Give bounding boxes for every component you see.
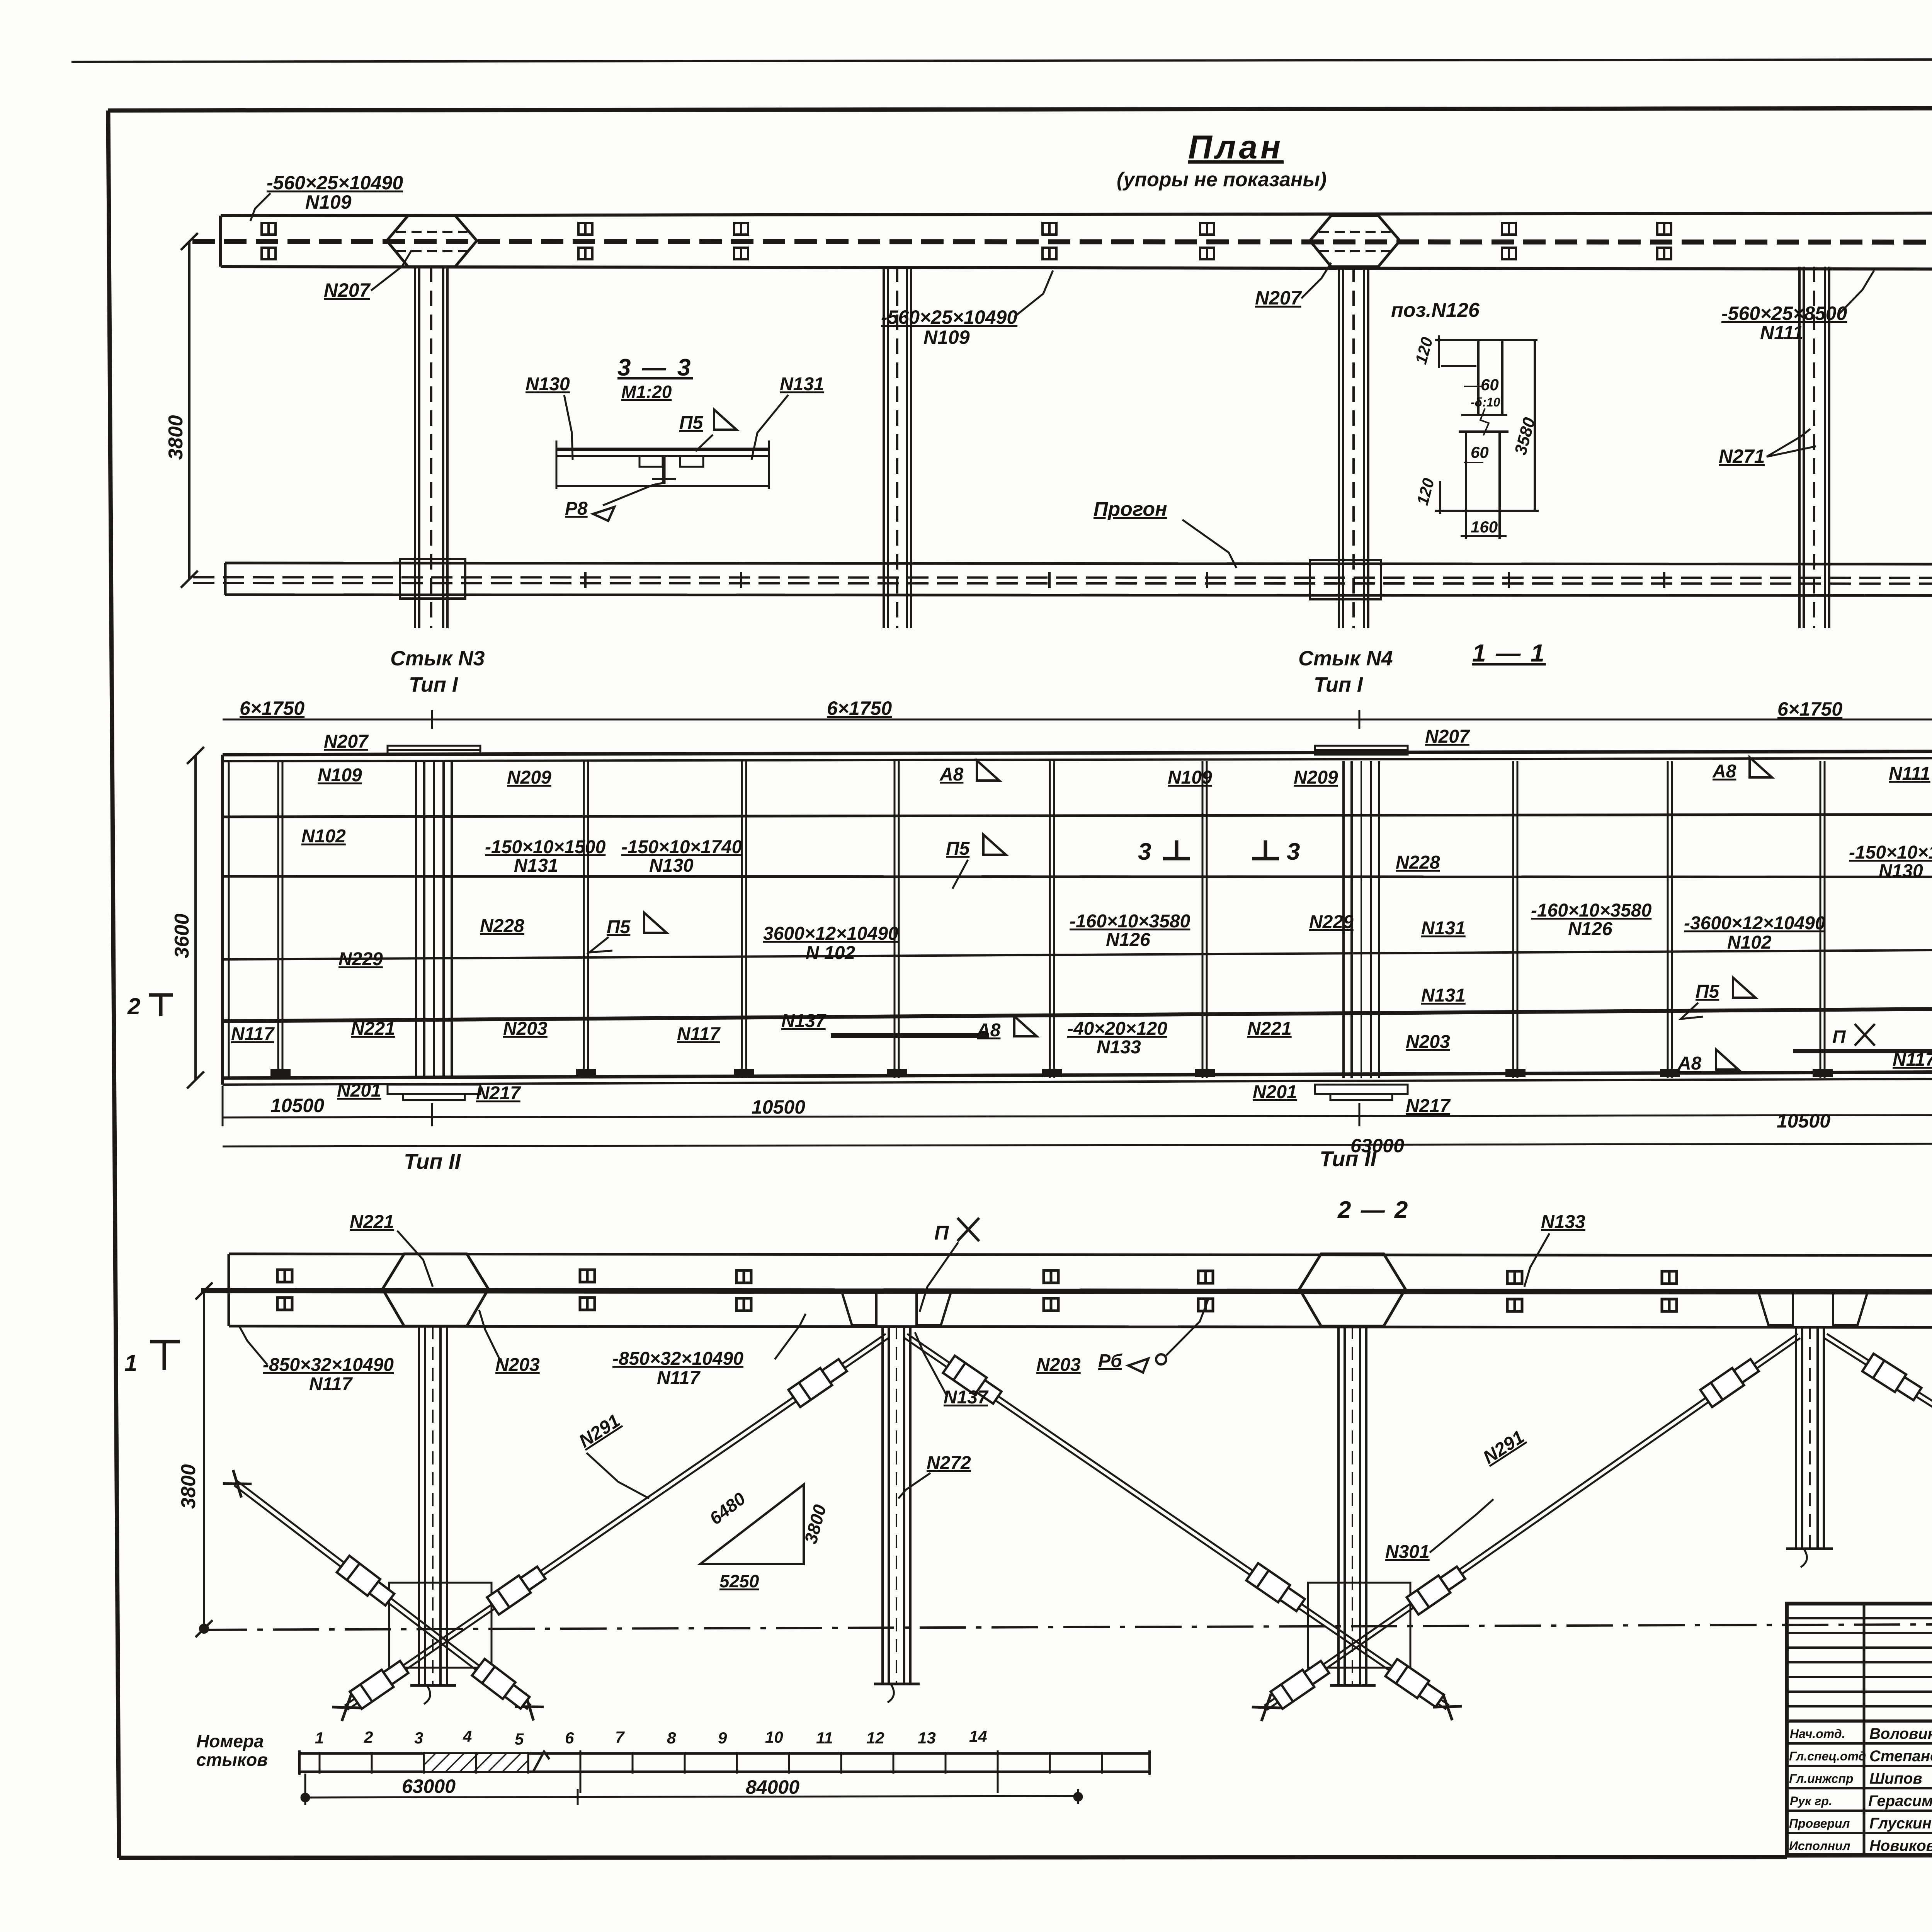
svg-text:N102: N102 bbox=[1727, 932, 1772, 953]
svg-text:N 102: N 102 bbox=[806, 943, 855, 963]
svg-text:Степанов: Степанов bbox=[1869, 1748, 1932, 1765]
svg-text:3: 3 bbox=[1138, 838, 1151, 865]
svg-text:N109: N109 bbox=[1168, 767, 1212, 788]
svg-text:А8: А8 bbox=[1712, 761, 1736, 782]
svg-text:N133: N133 bbox=[1097, 1037, 1141, 1058]
svg-text:6×1750: 6×1750 bbox=[240, 697, 304, 719]
svg-text:6×1750: 6×1750 bbox=[827, 697, 892, 719]
svg-text:Исполнил: Исполнил bbox=[1789, 1839, 1850, 1853]
svg-text:N207: N207 bbox=[1255, 287, 1302, 309]
svg-text:Номера: Номера bbox=[196, 1731, 264, 1751]
svg-text:9: 9 bbox=[718, 1729, 727, 1747]
svg-text:10500: 10500 bbox=[1777, 1110, 1830, 1132]
svg-text:N130: N130 bbox=[1879, 861, 1923, 881]
svg-text:N228: N228 bbox=[480, 916, 524, 936]
svg-text:N130: N130 bbox=[649, 855, 694, 876]
svg-text:Тип I: Тип I bbox=[409, 673, 458, 696]
svg-text:N301: N301 bbox=[1385, 1542, 1430, 1562]
svg-text:N137: N137 bbox=[781, 1011, 827, 1031]
svg-text:N207: N207 bbox=[1425, 726, 1470, 747]
svg-text:10500: 10500 bbox=[270, 1095, 324, 1116]
svg-text:Нач.отд.: Нач.отд. bbox=[1790, 1727, 1845, 1741]
svg-text:160: 160 bbox=[1471, 518, 1498, 536]
svg-text:N209: N209 bbox=[507, 767, 551, 788]
svg-text:11: 11 bbox=[816, 1729, 833, 1747]
svg-text:N126: N126 bbox=[1568, 919, 1612, 939]
svg-text:3600×12×10490: 3600×12×10490 bbox=[763, 923, 898, 944]
svg-text:6×1750: 6×1750 bbox=[1777, 698, 1842, 720]
svg-text:3800: 3800 bbox=[165, 415, 187, 460]
svg-text:П: П bbox=[934, 1222, 949, 1244]
svg-text:N131: N131 bbox=[514, 855, 558, 876]
svg-text:А8: А8 bbox=[976, 1020, 1001, 1041]
svg-text:N109: N109 bbox=[318, 765, 362, 786]
svg-text:N207: N207 bbox=[324, 731, 369, 752]
svg-text:63000: 63000 bbox=[402, 1776, 456, 1797]
svg-text:Герасимова: Герасимова bbox=[1868, 1793, 1932, 1810]
svg-text:N209: N209 bbox=[1294, 767, 1338, 788]
svg-text:-150×10×1740: -150×10×1740 bbox=[1849, 842, 1932, 863]
svg-text:N130: N130 bbox=[526, 374, 570, 395]
svg-text:Стык N3: Стык N3 bbox=[390, 647, 485, 670]
svg-text:Р8: Р8 bbox=[565, 498, 588, 519]
svg-text:Стык N4: Стык N4 bbox=[1298, 647, 1393, 670]
svg-text:-40×20×120: -40×20×120 bbox=[1067, 1019, 1167, 1039]
svg-text:Прогон: Прогон bbox=[1094, 498, 1167, 520]
svg-text:-3600×12×10490: -3600×12×10490 bbox=[1684, 913, 1825, 934]
svg-text:Тип II: Тип II bbox=[404, 1149, 461, 1173]
svg-text:N133: N133 bbox=[1541, 1212, 1585, 1232]
svg-text:8: 8 bbox=[667, 1729, 676, 1747]
svg-text:N229: N229 bbox=[1309, 912, 1354, 932]
svg-text:N117: N117 bbox=[677, 1024, 721, 1044]
svg-text:N109: N109 bbox=[305, 191, 352, 213]
svg-text:Рук гр.: Рук гр. bbox=[1790, 1794, 1832, 1808]
svg-text:N131: N131 bbox=[1421, 985, 1466, 1006]
svg-text:(упоры не показаны): (упоры не показаны) bbox=[1117, 168, 1327, 191]
svg-text:Проверил: Проверил bbox=[1789, 1816, 1850, 1830]
svg-text:14: 14 bbox=[969, 1727, 987, 1745]
svg-text:Новикова: Новикова bbox=[1869, 1837, 1932, 1854]
svg-text:-160×10×3580: -160×10×3580 bbox=[1531, 900, 1652, 921]
svg-text:Тип I: Тип I bbox=[1314, 673, 1363, 696]
svg-text:3: 3 bbox=[1287, 838, 1300, 865]
svg-text:5250: 5250 bbox=[719, 1571, 759, 1591]
svg-text:N221: N221 bbox=[1247, 1019, 1292, 1039]
svg-text:3600: 3600 bbox=[171, 913, 193, 958]
svg-text:1 — 1: 1 — 1 bbox=[1472, 639, 1546, 667]
svg-text:А8: А8 bbox=[1677, 1053, 1702, 1074]
svg-text:М1:20: М1:20 bbox=[621, 382, 672, 402]
svg-text:N201: N201 bbox=[1253, 1082, 1297, 1102]
svg-text:П5: П5 bbox=[1696, 981, 1720, 1002]
svg-text:13: 13 bbox=[918, 1729, 936, 1747]
svg-text:Рб: Рб bbox=[1098, 1351, 1122, 1371]
svg-text:-560×25×10490: -560×25×10490 bbox=[267, 172, 403, 194]
svg-text:1: 1 bbox=[315, 1729, 324, 1747]
svg-text:4: 4 bbox=[463, 1727, 472, 1745]
svg-text:N203: N203 bbox=[503, 1019, 548, 1039]
svg-text:-δ:10: -δ:10 bbox=[1471, 395, 1500, 409]
svg-text:N111: N111 bbox=[1889, 764, 1930, 784]
svg-text:Шипов: Шипов bbox=[1869, 1770, 1922, 1787]
svg-text:Воловик: Воловик bbox=[1869, 1725, 1932, 1742]
svg-text:N111: N111 bbox=[1760, 322, 1803, 344]
svg-text:П5: П5 bbox=[679, 413, 704, 433]
svg-text:7: 7 bbox=[615, 1728, 625, 1746]
svg-text:60: 60 bbox=[1481, 376, 1499, 394]
svg-text:10: 10 bbox=[765, 1728, 783, 1746]
svg-text:N228: N228 bbox=[1396, 852, 1440, 873]
svg-text:N102: N102 bbox=[301, 826, 346, 847]
svg-text:N203: N203 bbox=[1406, 1032, 1450, 1052]
svg-text:N203: N203 bbox=[1036, 1355, 1081, 1375]
svg-text:План: План bbox=[1188, 129, 1284, 166]
svg-text:N137: N137 bbox=[944, 1387, 989, 1408]
svg-text:3: 3 bbox=[414, 1729, 423, 1747]
svg-text:N229: N229 bbox=[338, 949, 383, 969]
svg-text:Гл.спец.отд: Гл.спец.отд bbox=[1789, 1749, 1866, 1763]
svg-text:6: 6 bbox=[565, 1729, 574, 1747]
svg-text:60: 60 bbox=[1471, 443, 1489, 461]
svg-text:5: 5 bbox=[515, 1730, 524, 1748]
svg-text:N217: N217 bbox=[476, 1083, 521, 1104]
svg-text:-850×32×10490: -850×32×10490 bbox=[263, 1355, 394, 1375]
svg-text:-150×10×1740: -150×10×1740 bbox=[621, 837, 742, 857]
svg-text:N271: N271 bbox=[1719, 446, 1765, 467]
svg-text:N117: N117 bbox=[657, 1368, 701, 1388]
svg-text:N272: N272 bbox=[927, 1453, 971, 1473]
svg-text:N117: N117 bbox=[231, 1024, 275, 1044]
svg-text:поз.N126: поз.N126 bbox=[1391, 299, 1480, 321]
svg-text:2 — 2: 2 — 2 bbox=[1337, 1197, 1409, 1223]
svg-text:-560×25×10490: -560×25×10490 bbox=[881, 306, 1017, 328]
svg-text:3800: 3800 bbox=[177, 1464, 200, 1509]
svg-text:1: 1 bbox=[124, 1350, 137, 1376]
svg-text:Глускин: Глускин bbox=[1869, 1815, 1932, 1832]
svg-text:N117: N117 bbox=[1893, 1049, 1932, 1070]
svg-text:N131: N131 bbox=[1421, 918, 1466, 939]
svg-text:-160×10×3580: -160×10×3580 bbox=[1070, 911, 1190, 932]
svg-text:N126: N126 bbox=[1106, 930, 1150, 950]
svg-text:П5: П5 bbox=[607, 917, 631, 937]
svg-text:Тип II: Тип II bbox=[1320, 1146, 1377, 1171]
svg-text:N217: N217 bbox=[1406, 1096, 1451, 1116]
svg-text:N221: N221 bbox=[351, 1019, 395, 1039]
svg-text:84000: 84000 bbox=[746, 1776, 799, 1798]
svg-text:N201: N201 bbox=[337, 1080, 381, 1101]
svg-text:N203: N203 bbox=[495, 1355, 540, 1375]
svg-text:N117: N117 bbox=[309, 1374, 353, 1395]
svg-text:П5: П5 bbox=[946, 838, 970, 859]
svg-text:Гл.инжспр: Гл.инжспр bbox=[1789, 1772, 1854, 1786]
svg-text:12: 12 bbox=[866, 1729, 884, 1747]
svg-text:стыков: стыков bbox=[196, 1750, 268, 1770]
svg-text:10500: 10500 bbox=[752, 1096, 805, 1118]
svg-text:3 — 3: 3 — 3 bbox=[617, 354, 693, 381]
svg-text:N207: N207 bbox=[324, 279, 371, 301]
svg-text:П: П bbox=[1832, 1027, 1846, 1048]
svg-text:2: 2 bbox=[364, 1728, 373, 1746]
svg-text:-150×10×1500: -150×10×1500 bbox=[485, 837, 606, 857]
svg-text:N221: N221 bbox=[350, 1212, 394, 1232]
svg-text:А8: А8 bbox=[939, 764, 964, 785]
svg-text:-560×25×8500: -560×25×8500 bbox=[1721, 303, 1847, 324]
svg-text:N109: N109 bbox=[923, 327, 970, 348]
svg-text:-850×32×10490: -850×32×10490 bbox=[612, 1349, 743, 1369]
svg-text:2: 2 bbox=[127, 993, 140, 1019]
svg-text:N131: N131 bbox=[780, 374, 824, 395]
